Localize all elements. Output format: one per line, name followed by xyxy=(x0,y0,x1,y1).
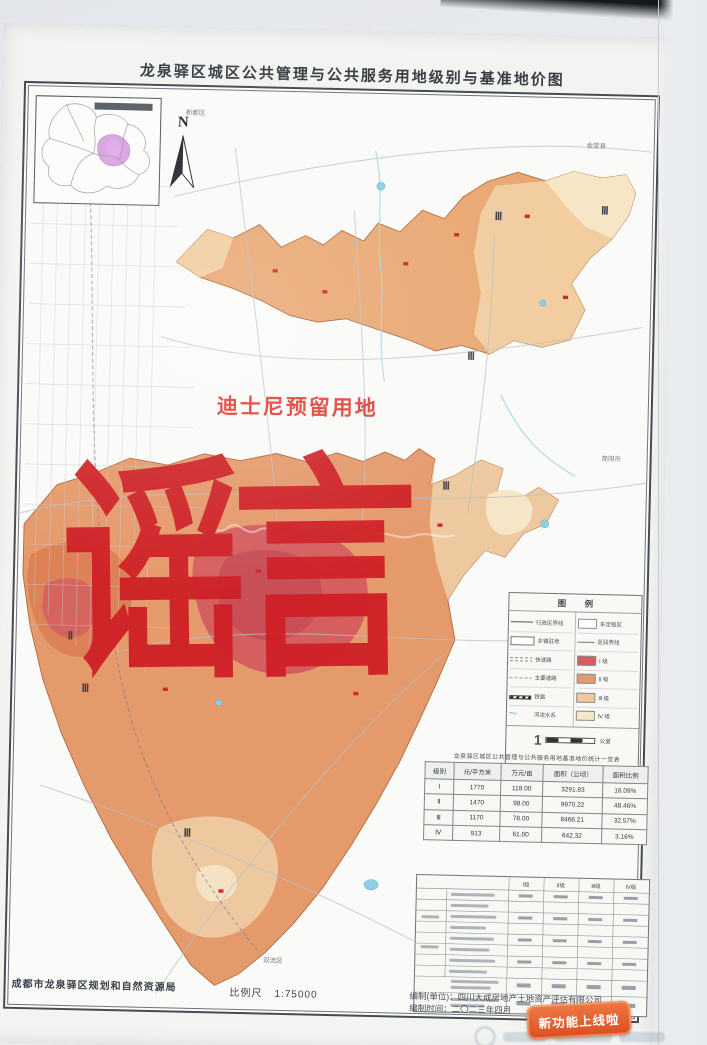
inset-locator-map xyxy=(33,95,161,206)
cell: 3.16% xyxy=(602,829,647,845)
north-label: N xyxy=(163,114,203,132)
legend-item-label: Ⅳ 级 xyxy=(598,712,610,720)
legend-item: 区段界线 xyxy=(577,633,638,653)
expressway-symbol xyxy=(510,655,532,663)
main-road-symbol xyxy=(510,673,532,681)
cell: 9970.22 xyxy=(542,797,603,814)
legend-item-label: 快速路 xyxy=(535,655,552,663)
svg-text:金堂县: 金堂县 xyxy=(586,141,606,150)
svg-text:Ⅲ: Ⅲ xyxy=(81,683,89,695)
cell: 1470 xyxy=(453,795,500,811)
cell: 118.00 xyxy=(500,780,543,796)
map-scale: 比例尺1:75000 xyxy=(229,984,317,1001)
cell: 1770 xyxy=(454,779,501,795)
legend-item: 未定级区 xyxy=(578,615,639,635)
legend-item-label: 行政区界线 xyxy=(536,618,564,627)
map-sheet: 龙泉驿区城区公共管理与公共服务用地级别与基准地价图 xyxy=(0,22,675,1045)
legend-item: Ⅰ 级 xyxy=(577,652,638,672)
cell: 78.00 xyxy=(500,811,543,827)
svg-text:Ⅲ: Ⅲ xyxy=(467,351,475,363)
svg-text:Ⅲ: Ⅲ xyxy=(183,827,191,839)
cell: 642.32 xyxy=(542,827,603,844)
svg-text:Ⅲ级: Ⅲ级 xyxy=(591,882,601,890)
cell: 98.00 xyxy=(500,796,543,812)
svg-text:Ⅲ: Ⅲ xyxy=(495,211,503,223)
legend-item-label: 乡镇驻地 xyxy=(537,637,559,645)
grade4-swatch xyxy=(576,711,595,721)
legend-scale-bar: 1 公里 xyxy=(506,725,639,755)
header-cell: 元/平方米 xyxy=(454,762,501,780)
legend-item: Ⅳ 级 xyxy=(576,707,637,726)
cell: Ⅰ xyxy=(425,779,454,795)
legend-item-label: Ⅱ 级 xyxy=(599,675,609,683)
cell: Ⅱ xyxy=(424,794,453,810)
cell: 913 xyxy=(452,825,499,841)
header-cell: 级别 xyxy=(425,761,454,779)
map-frame: Ⅲ Ⅲ Ⅲ Ⅲ Ⅱ Ⅲ Ⅲ 新都区 金堂县 简阳市 双流区 xyxy=(3,81,660,1023)
legend-right-column: 未定级区 区段界线 Ⅰ 级 Ⅱ 级 Ⅲ 级 Ⅳ 级 xyxy=(573,613,642,728)
ungraded-swatch xyxy=(578,618,597,628)
legend-item: 快速路 xyxy=(510,650,572,670)
segment-line-symbol xyxy=(578,641,595,642)
svg-text:Ⅰ级: Ⅰ级 xyxy=(522,880,530,888)
svg-text:Ⅱ: Ⅱ xyxy=(68,630,74,642)
legend: 图 例 行政区界线 乡镇驻地 快速路 主要道路 铁路 〜河流水系 未定级区 区段… xyxy=(505,592,643,775)
price-table: 龙泉驿区城区公共管理与公共服务用地基准地价统计一览表 级别 元/平方米 万元/亩… xyxy=(423,750,649,845)
svg-text:简阳市: 简阳市 xyxy=(601,454,621,463)
legend-item: 〜河流水系 xyxy=(509,706,571,725)
scale-value: 1:75000 xyxy=(274,989,317,1001)
svg-text:双流区: 双流区 xyxy=(263,955,283,964)
cell: 1170 xyxy=(453,810,500,826)
cell: Ⅳ xyxy=(423,825,452,841)
legend-item: 乡镇驻地 xyxy=(510,632,572,652)
disney-reserved-land-annotation: 迪士尼预留用地 xyxy=(217,390,378,422)
cell: 16.09% xyxy=(603,783,648,799)
cell: 48.46% xyxy=(603,798,648,814)
photo-background: 龙泉驿区城区公共管理与公共服务用地级别与基准地价图 xyxy=(0,0,707,1045)
legend-item-label: 区段界线 xyxy=(597,638,619,646)
legend-item: 铁路 xyxy=(509,687,571,707)
river-symbol: 〜 xyxy=(509,710,531,718)
cell: Ⅲ xyxy=(424,809,453,825)
legend-item-label: 河流水系 xyxy=(534,711,556,719)
svg-text:Ⅳ级: Ⅳ级 xyxy=(626,883,637,891)
grade1-swatch xyxy=(577,655,596,665)
legend-item: Ⅱ 级 xyxy=(576,670,637,690)
faint-handwriting-watermark xyxy=(196,507,477,553)
legend-item-label: Ⅲ 级 xyxy=(598,694,609,702)
legend-item-label: 未定级区 xyxy=(600,620,622,628)
boundary-line-symbol xyxy=(511,618,533,626)
header-cell: 面积（公顷） xyxy=(543,764,604,783)
scale-bar xyxy=(546,737,596,744)
legend-item-label: Ⅰ 级 xyxy=(599,657,608,665)
north-arrow: N xyxy=(161,114,203,201)
legend-item: Ⅲ 级 xyxy=(576,689,637,709)
legend-item-label: 铁路 xyxy=(534,692,545,700)
legend-item: 行政区界线 xyxy=(511,613,573,633)
svg-text:Ⅲ: Ⅲ xyxy=(442,480,450,492)
cell: 32.57% xyxy=(602,813,647,829)
scale-mark: 1 xyxy=(534,732,542,748)
legend-item-label: 主要道路 xyxy=(535,674,557,682)
header-cell: 面积比例 xyxy=(603,765,648,783)
grade2-swatch xyxy=(577,674,596,684)
svg-text:Ⅱ级: Ⅱ级 xyxy=(557,881,566,889)
wall-edge xyxy=(658,0,707,1045)
railway-symbol xyxy=(509,692,531,700)
grade3-swatch xyxy=(576,692,595,702)
cell: 8466.21 xyxy=(542,812,603,829)
legend-left-column: 行政区界线 乡镇驻地 快速路 主要道路 铁路 〜河流水系 xyxy=(507,611,576,726)
svg-text:Ⅲ: Ⅲ xyxy=(601,205,609,217)
cell: 3291.83 xyxy=(543,781,604,798)
north-grade-region xyxy=(175,163,637,358)
new-feature-badge[interactable]: 新功能上线啦 xyxy=(526,1000,632,1039)
legend-item: 主要道路 xyxy=(509,669,571,689)
scale-label: 比例尺 xyxy=(229,988,262,1000)
scale-unit-label: 公里 xyxy=(600,737,611,745)
header-cell: 万元/亩 xyxy=(501,763,544,781)
cell: 61.00 xyxy=(499,826,542,842)
town-symbol xyxy=(510,636,534,646)
